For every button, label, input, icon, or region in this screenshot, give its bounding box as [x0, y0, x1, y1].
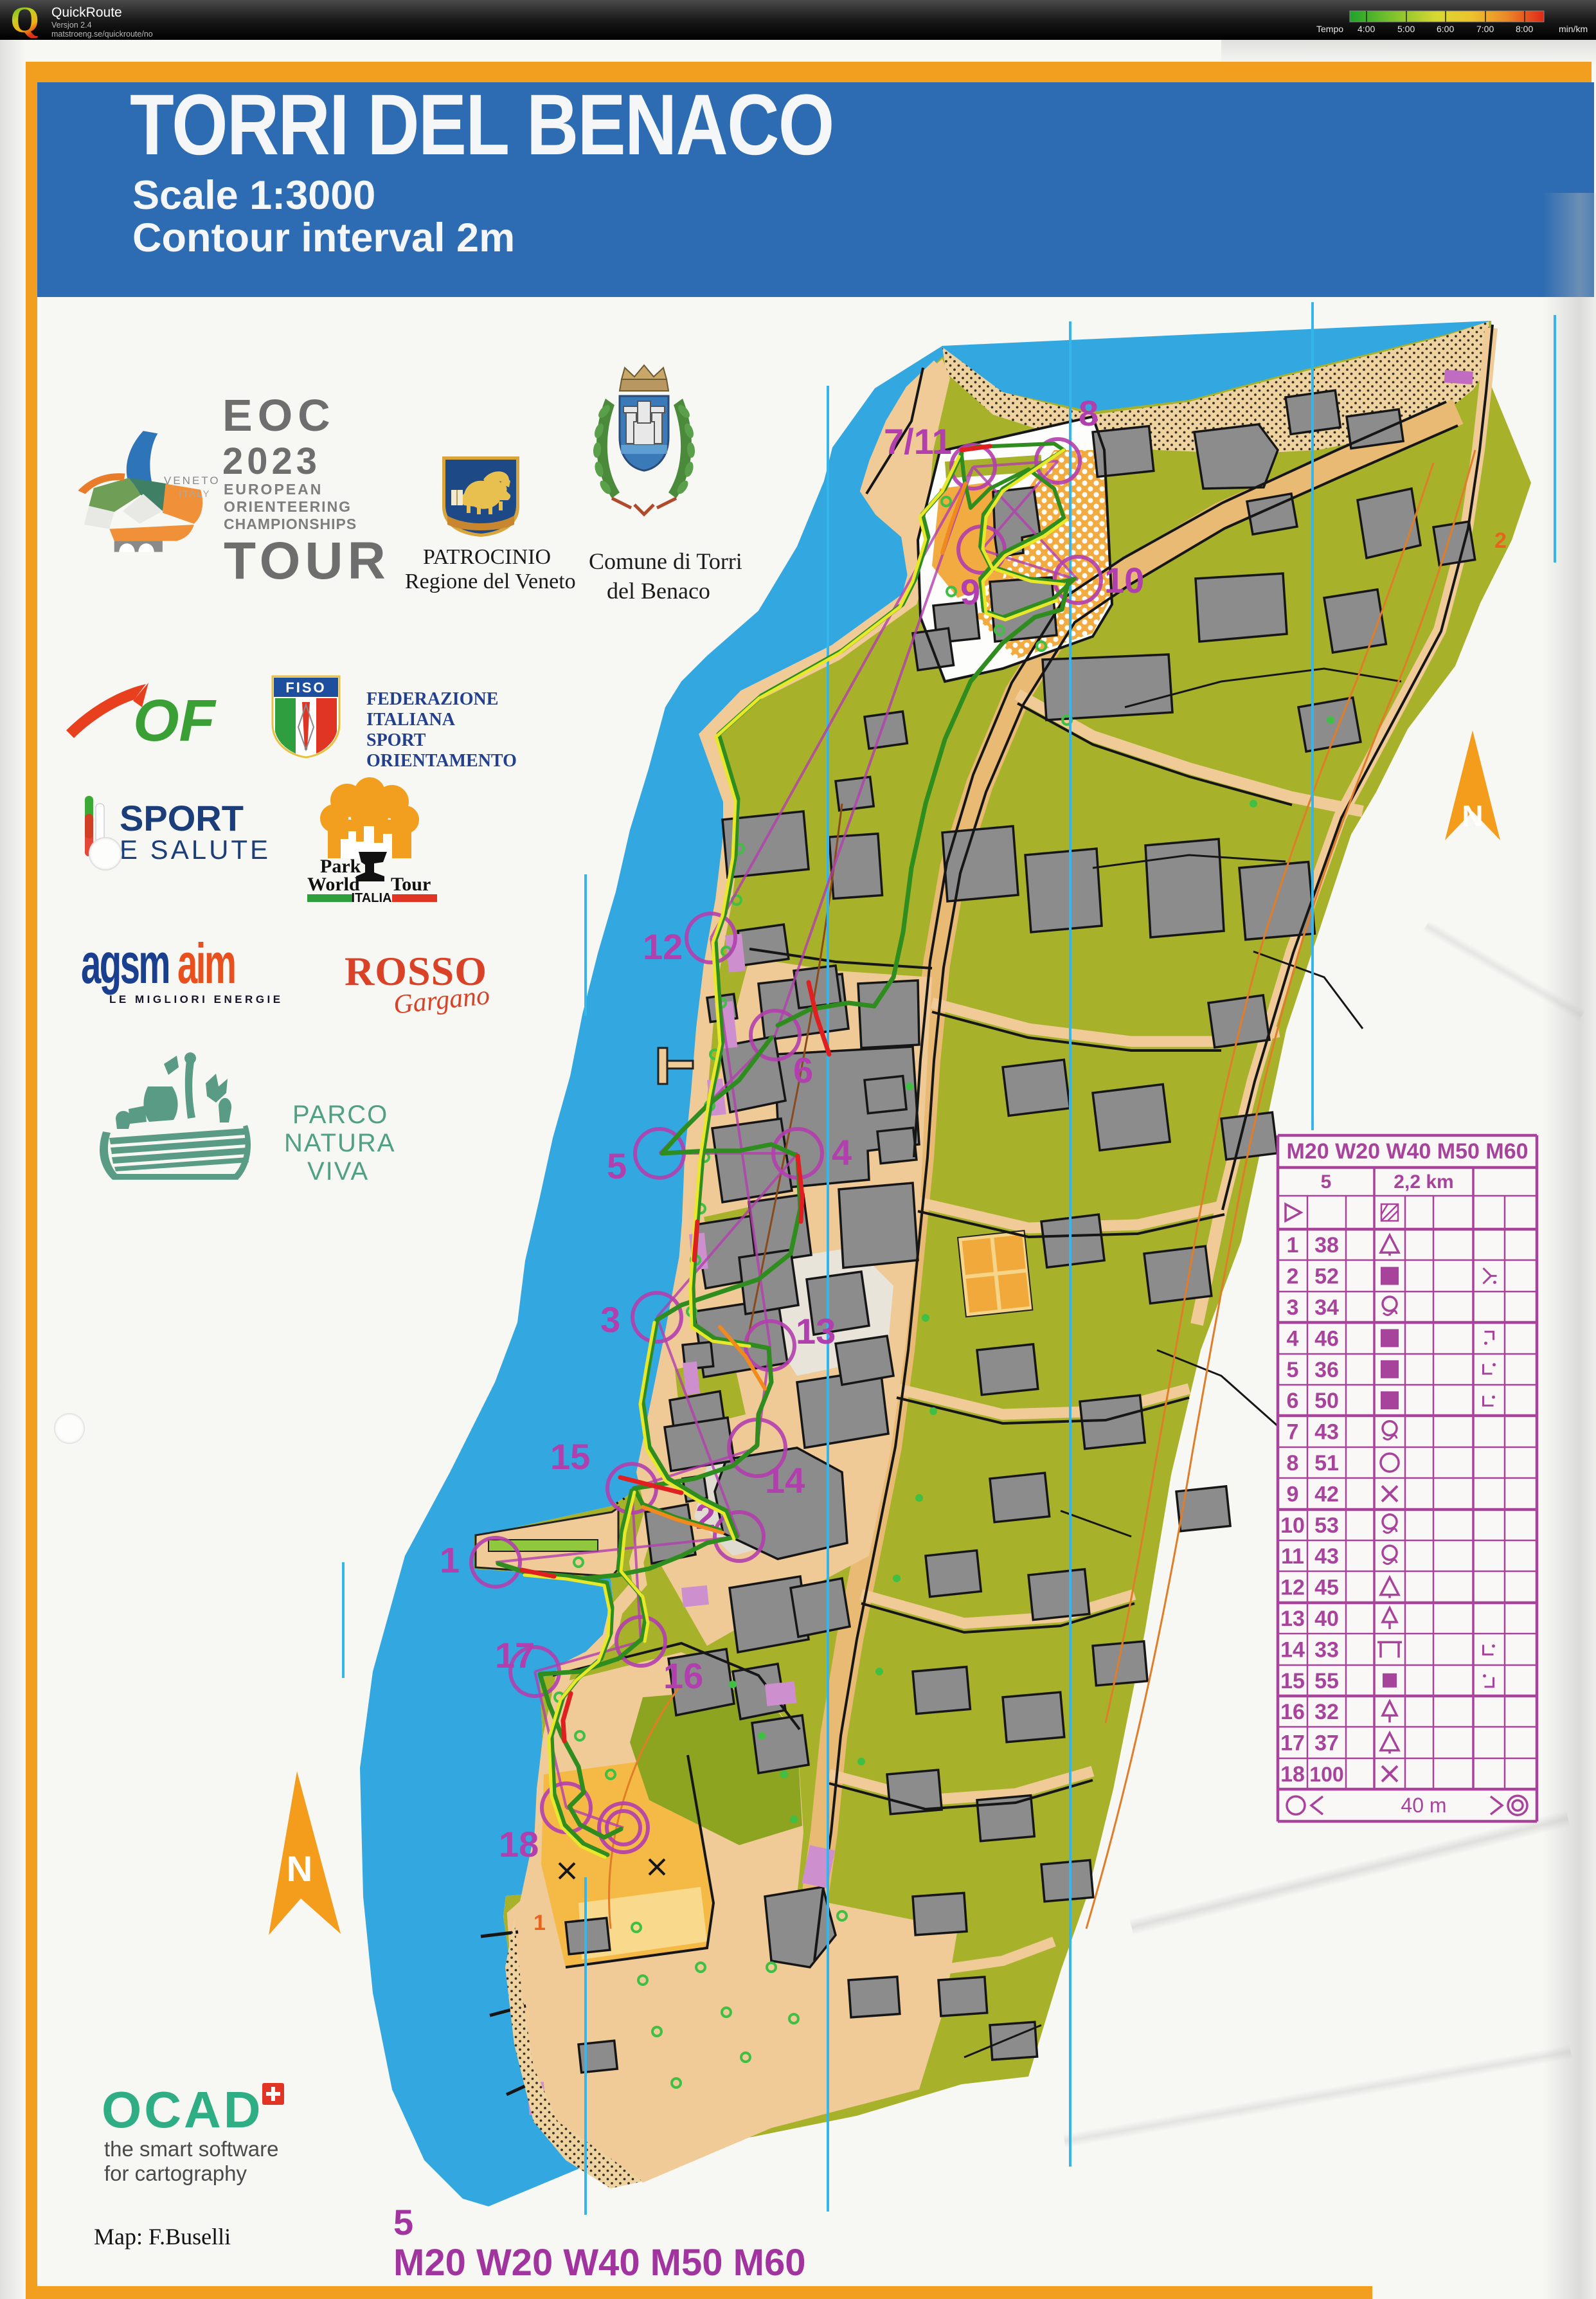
svg-text:OF: OF — [133, 688, 217, 753]
svg-text:3: 3 — [1287, 1295, 1299, 1320]
svg-text:M20 W20 W40 M50 M60: M20 W20 W40 M50 M60 — [1286, 1139, 1528, 1164]
svg-text:51: 51 — [1314, 1451, 1339, 1475]
svg-text:10: 10 — [1280, 1513, 1305, 1538]
svg-text:8: 8 — [1287, 1451, 1299, 1475]
svg-text:34: 34 — [1314, 1295, 1339, 1320]
svg-text:36: 36 — [1314, 1358, 1339, 1382]
svg-text:42: 42 — [1314, 1482, 1339, 1506]
svg-text:45: 45 — [1314, 1576, 1339, 1600]
svg-text:16: 16 — [1280, 1700, 1305, 1724]
svg-text:14: 14 — [1280, 1637, 1305, 1662]
svg-text:40 m: 40 m — [1401, 1794, 1446, 1817]
svg-text:18: 18 — [1280, 1762, 1305, 1787]
svg-text:1: 1 — [1287, 1233, 1299, 1258]
svg-text:55: 55 — [1314, 1669, 1339, 1693]
svg-text:32: 32 — [1314, 1700, 1339, 1724]
svg-text:17: 17 — [1280, 1731, 1305, 1756]
svg-text:9: 9 — [1287, 1482, 1299, 1506]
svg-text:13: 13 — [1280, 1607, 1305, 1631]
svg-text:FISO: FISO — [285, 680, 326, 696]
svg-text:52: 52 — [1314, 1265, 1339, 1289]
svg-text:ITALIA: ITALIA — [352, 891, 392, 903]
svg-text:11: 11 — [1281, 1544, 1304, 1569]
svg-text:40: 40 — [1314, 1607, 1339, 1631]
svg-text:7: 7 — [1287, 1420, 1299, 1445]
svg-text:37: 37 — [1314, 1731, 1339, 1756]
svg-text:15: 15 — [1280, 1669, 1305, 1693]
svg-text:43: 43 — [1314, 1420, 1339, 1445]
svg-text:43: 43 — [1314, 1544, 1339, 1569]
svg-text:6: 6 — [1287, 1389, 1299, 1413]
svg-text:46: 46 — [1314, 1326, 1339, 1351]
svg-text:N: N — [1462, 799, 1483, 833]
svg-text:5: 5 — [1287, 1358, 1299, 1382]
svg-text:4: 4 — [1287, 1326, 1299, 1351]
svg-text:2,2 km: 2,2 km — [1394, 1171, 1453, 1193]
svg-text:53: 53 — [1314, 1513, 1339, 1538]
svg-text:Tour: Tour — [391, 874, 431, 895]
svg-text:100: 100 — [1309, 1763, 1343, 1786]
svg-text:2: 2 — [1287, 1265, 1299, 1289]
svg-text:5: 5 — [1321, 1171, 1332, 1193]
svg-text:12: 12 — [1280, 1576, 1305, 1600]
svg-text:50: 50 — [1314, 1389, 1339, 1413]
svg-text:38: 38 — [1314, 1233, 1339, 1258]
svg-text:N: N — [287, 1848, 312, 1889]
svg-text:33: 33 — [1314, 1637, 1339, 1662]
